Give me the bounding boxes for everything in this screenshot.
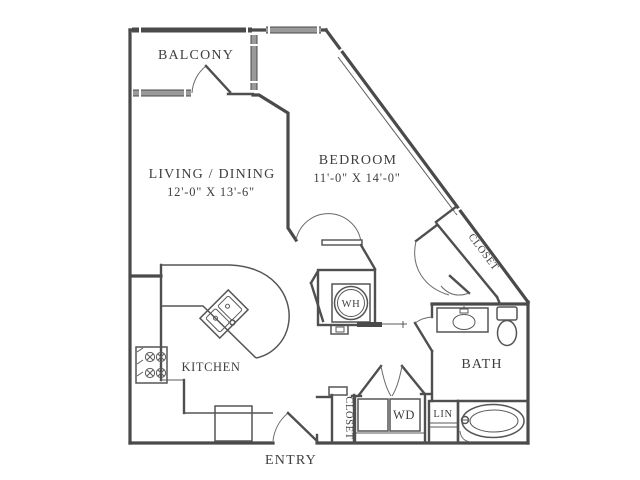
floor-plan-page: BALCONY LIVING / DINING 12'-0" X 13'-6" …	[0, 0, 640, 480]
kitchen-area: KITCHEN	[131, 265, 289, 441]
bath-door-leaf	[415, 323, 432, 351]
living-dining-label: LIVING / DINING	[149, 167, 276, 182]
laundry-door-left-leaf	[359, 366, 381, 395]
linen-closet: LIN	[429, 401, 458, 443]
bedroom-door-swing	[296, 214, 361, 242]
washer-dryer-label: WD	[393, 408, 415, 422]
entry-area: ENTRY	[265, 413, 317, 468]
laundry-closet: WD	[352, 366, 430, 443]
hall-ledge	[357, 322, 382, 327]
entry-door-leaf	[288, 413, 317, 441]
refrigerator	[215, 406, 252, 441]
balcony-label: BALCONY	[158, 48, 234, 63]
bath-area: BATH LIN	[415, 304, 528, 443]
bathtub	[460, 405, 524, 443]
bath-label: BATH	[461, 357, 502, 372]
floor-plan-drawing: BALCONY LIVING / DINING 12'-0" X 13'-6" …	[0, 0, 640, 480]
laundry-door-right-leaf	[402, 366, 424, 393]
kitchen-counter	[161, 265, 289, 358]
water-heater: WH	[311, 270, 407, 334]
linen-label: LIN	[433, 409, 452, 420]
entry-closet-label: CLOSET	[343, 396, 354, 439]
bedroom-closet: CLOSET	[415, 206, 501, 304]
balcony-area: BALCONY	[158, 48, 253, 94]
bath-vanity	[437, 306, 488, 332]
bedroom-door-leaf	[322, 240, 362, 245]
stove	[136, 347, 167, 383]
kitchen-sink	[200, 290, 248, 338]
kitchen-label: KITCHEN	[181, 360, 240, 374]
water-heater-label: WH	[342, 299, 361, 310]
bath-door-swing	[415, 317, 432, 323]
bedroom-dimensions: 11'-0" X 14'-0"	[313, 171, 400, 185]
entry-label: ENTRY	[265, 453, 317, 468]
closet-door-left-leaf	[416, 225, 437, 241]
toilet	[497, 307, 517, 346]
bedroom-label: BEDROOM	[319, 153, 397, 168]
washer-unit	[358, 399, 388, 431]
bath-sink	[453, 315, 475, 330]
entry-closet: CLOSET	[317, 387, 354, 443]
closet-door-right-leaf	[450, 276, 469, 293]
entry-door-swing	[273, 413, 288, 441]
living-dining-dimensions: 12'-0" X 13'-6"	[167, 185, 255, 199]
